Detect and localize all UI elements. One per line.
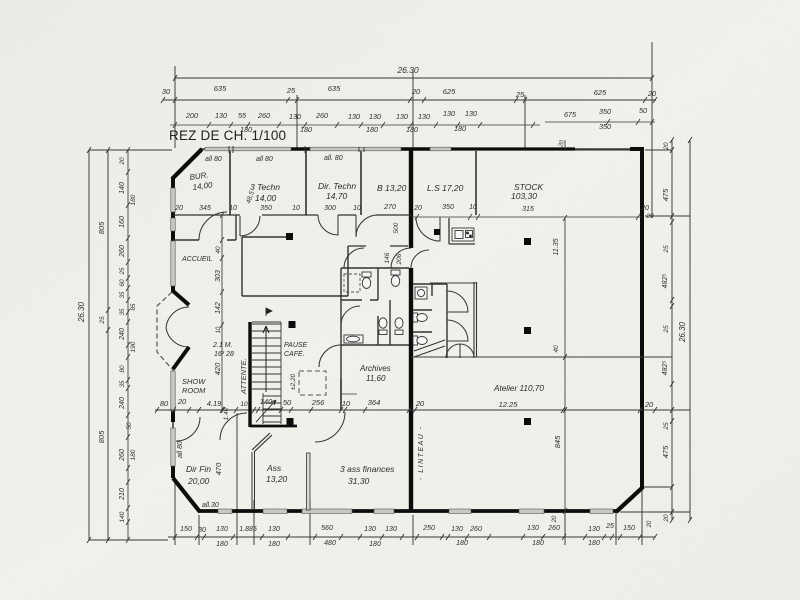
svg-text:L.S 17,20: L.S 17,20 xyxy=(427,183,464,193)
svg-text:14,00: 14,00 xyxy=(255,193,277,203)
svg-text:260: 260 xyxy=(257,111,270,120)
svg-text:ACCUEIL: ACCUEIL xyxy=(181,256,212,263)
svg-text:20: 20 xyxy=(647,520,653,528)
svg-text:130: 130 xyxy=(418,112,430,121)
svg-text:303: 303 xyxy=(215,270,222,282)
svg-text:80: 80 xyxy=(160,399,169,408)
svg-text:20: 20 xyxy=(177,397,187,406)
svg-text:625: 625 xyxy=(443,87,456,96)
svg-text:142: 142 xyxy=(215,302,222,314)
svg-text:25: 25 xyxy=(120,267,126,275)
svg-text:260: 260 xyxy=(119,245,126,258)
svg-text:20: 20 xyxy=(174,205,183,212)
svg-text:26.30: 26.30 xyxy=(77,301,86,323)
svg-text:180: 180 xyxy=(369,541,381,548)
svg-text:25: 25 xyxy=(286,86,296,95)
svg-text:B 13,20: B 13,20 xyxy=(377,183,407,193)
svg-text:180: 180 xyxy=(406,125,418,134)
svg-text:CAFE.: CAFE. xyxy=(284,351,305,358)
svg-text:20: 20 xyxy=(415,399,425,408)
svg-text:482⁵: 482⁵ xyxy=(662,274,669,289)
svg-text:1.885: 1.885 xyxy=(239,526,257,533)
svg-text:40: 40 xyxy=(553,345,560,353)
svg-text:40: 40 xyxy=(215,246,222,254)
svg-text:25: 25 xyxy=(99,316,106,325)
svg-text:REZ DE CH. 1/100: REZ DE CH. 1/100 xyxy=(169,128,286,143)
svg-text:130: 130 xyxy=(364,526,376,533)
svg-text:20: 20 xyxy=(644,400,654,409)
svg-text:35: 35 xyxy=(120,380,126,387)
svg-text:130: 130 xyxy=(215,111,227,120)
svg-text:130: 130 xyxy=(268,526,280,533)
svg-text:130: 130 xyxy=(289,112,301,121)
svg-text:130: 130 xyxy=(216,526,228,533)
svg-text:470: 470 xyxy=(214,462,223,475)
svg-text:635: 635 xyxy=(328,84,341,93)
svg-text:Atelier 110,70: Atelier 110,70 xyxy=(493,384,544,393)
svg-text:10: 10 xyxy=(469,204,477,211)
svg-text:140: 140 xyxy=(119,182,126,194)
svg-text:130: 130 xyxy=(348,112,360,121)
svg-text:560: 560 xyxy=(321,525,333,532)
svg-text:364: 364 xyxy=(368,398,381,407)
svg-text:180: 180 xyxy=(454,124,466,133)
svg-text:130: 130 xyxy=(443,109,455,118)
svg-text:240: 240 xyxy=(119,397,126,410)
svg-text:260: 260 xyxy=(547,525,560,532)
svg-text:55: 55 xyxy=(238,111,247,120)
svg-text:420: 420 xyxy=(213,362,222,375)
svg-text:20: 20 xyxy=(663,514,670,523)
svg-text:206: 206 xyxy=(396,253,403,265)
svg-text:10: 10 xyxy=(240,401,248,408)
svg-text:500: 500 xyxy=(393,222,400,233)
svg-text:250: 250 xyxy=(422,525,435,532)
svg-text:14,70: 14,70 xyxy=(326,191,348,201)
svg-text:482⁵: 482⁵ xyxy=(662,361,669,376)
svg-text:26.30: 26.30 xyxy=(678,321,687,343)
svg-text:10: 10 xyxy=(229,205,237,212)
svg-text:31,30: 31,30 xyxy=(348,476,370,486)
svg-text:130: 130 xyxy=(527,525,539,532)
svg-text:210: 210 xyxy=(119,488,126,501)
svg-text:50: 50 xyxy=(639,106,647,115)
svg-text:150: 150 xyxy=(623,525,635,532)
svg-text:140: 140 xyxy=(119,511,126,522)
svg-text:85: 85 xyxy=(131,303,137,310)
svg-text:260: 260 xyxy=(119,449,126,462)
svg-text:350: 350 xyxy=(599,107,611,116)
svg-text:all 80: all 80 xyxy=(205,156,222,163)
svg-text:20: 20 xyxy=(647,89,657,98)
svg-text:11,60: 11,60 xyxy=(366,374,386,383)
svg-text:805: 805 xyxy=(97,430,106,443)
svg-text:200: 200 xyxy=(185,111,198,120)
svg-text:PAUSE: PAUSE xyxy=(284,342,308,349)
svg-text:all. 80: all. 80 xyxy=(324,155,343,162)
svg-text:130: 130 xyxy=(588,526,600,533)
svg-text:50: 50 xyxy=(126,422,133,430)
svg-text:35: 35 xyxy=(120,291,126,298)
svg-text:10: 10 xyxy=(353,205,361,212)
svg-text:25: 25 xyxy=(663,325,670,334)
svg-text:180: 180 xyxy=(532,540,544,547)
svg-text:10: 10 xyxy=(216,326,222,333)
svg-text:130: 130 xyxy=(369,112,381,121)
svg-text:150: 150 xyxy=(180,526,192,533)
svg-text:350: 350 xyxy=(442,204,454,211)
svg-text:Dir. Techn: Dir. Techn xyxy=(318,181,356,191)
svg-text:1.40: 1.40 xyxy=(223,407,230,420)
svg-text:35: 35 xyxy=(120,308,126,315)
svg-text:350: 350 xyxy=(599,122,611,131)
svg-text:20: 20 xyxy=(552,515,558,523)
svg-text:130: 130 xyxy=(385,526,397,533)
svg-text:180: 180 xyxy=(366,125,378,134)
svg-text:146: 146 xyxy=(384,252,391,263)
svg-text:350: 350 xyxy=(260,205,272,212)
svg-text:160: 160 xyxy=(119,216,126,228)
svg-text:25: 25 xyxy=(515,90,525,99)
svg-text:20: 20 xyxy=(119,157,126,166)
svg-text:25: 25 xyxy=(605,523,614,530)
svg-text:480: 480 xyxy=(324,540,336,547)
svg-text:11.35: 11.35 xyxy=(553,238,560,255)
svg-text:±2,20: ±2,20 xyxy=(290,374,297,391)
svg-text:80: 80 xyxy=(119,365,126,373)
svg-text:10: 10 xyxy=(342,399,351,408)
svg-text:635: 635 xyxy=(214,84,227,93)
svg-text:103,30: 103,30 xyxy=(511,191,537,201)
svg-text:all 80: all 80 xyxy=(256,156,273,163)
svg-text:180: 180 xyxy=(216,541,228,548)
svg-text:ATTENTE.: ATTENTE. xyxy=(239,358,248,395)
svg-text:256: 256 xyxy=(311,398,325,407)
svg-text:315: 315 xyxy=(522,206,534,213)
svg-text:16³ 28: 16³ 28 xyxy=(214,351,234,358)
svg-text:all 80: all 80 xyxy=(177,441,184,458)
svg-text:180: 180 xyxy=(456,540,468,547)
svg-text:190: 190 xyxy=(130,341,137,352)
svg-text:180: 180 xyxy=(268,541,280,548)
svg-text:625: 625 xyxy=(594,88,607,97)
svg-text:Archives: Archives xyxy=(359,364,391,373)
svg-text:13,20: 13,20 xyxy=(266,474,288,484)
svg-text:all.30: all.30 xyxy=(202,502,219,509)
svg-text:20: 20 xyxy=(413,205,422,212)
svg-text:30: 30 xyxy=(162,87,171,96)
svg-text:845: 845 xyxy=(553,435,562,448)
svg-text:30: 30 xyxy=(198,527,206,534)
svg-text:10: 10 xyxy=(292,205,300,212)
svg-text:Ass: Ass xyxy=(266,463,282,473)
svg-text:180: 180 xyxy=(130,194,137,205)
svg-text:25: 25 xyxy=(663,422,670,431)
svg-text:4.19: 4.19 xyxy=(207,399,222,408)
svg-text:475: 475 xyxy=(661,445,670,458)
svg-text:20: 20 xyxy=(640,205,649,212)
svg-text:25: 25 xyxy=(663,245,670,254)
svg-text:Dir Fin: Dir Fin xyxy=(186,464,211,474)
svg-text:60: 60 xyxy=(119,279,126,287)
svg-text:180: 180 xyxy=(130,449,137,460)
svg-text:ROOM: ROOM xyxy=(182,386,206,395)
svg-text:20: 20 xyxy=(411,87,421,96)
svg-text:260: 260 xyxy=(315,111,328,120)
svg-text:12.25: 12.25 xyxy=(499,400,519,409)
svg-text:180: 180 xyxy=(588,540,600,547)
svg-text:805: 805 xyxy=(97,221,106,234)
svg-text:130: 130 xyxy=(465,109,477,118)
svg-text:2.1 M.: 2.1 M. xyxy=(212,342,233,349)
svg-text:675: 675 xyxy=(564,110,577,119)
svg-text:270: 270 xyxy=(383,204,396,211)
svg-text:130: 130 xyxy=(451,526,463,533)
svg-text:SHOW: SHOW xyxy=(182,377,206,386)
svg-text:180: 180 xyxy=(300,125,312,134)
svg-text:260: 260 xyxy=(469,526,482,533)
svg-text:50: 50 xyxy=(283,398,292,407)
svg-text:20: 20 xyxy=(645,213,654,220)
svg-text:130: 130 xyxy=(396,112,408,121)
svg-text:345: 345 xyxy=(199,205,211,212)
svg-text:475: 475 xyxy=(661,188,670,201)
svg-text:- LINTEAU -: - LINTEAU - xyxy=(418,425,425,480)
svg-text:3 Techn: 3 Techn xyxy=(250,182,280,192)
svg-text:20: 20 xyxy=(663,142,670,151)
svg-text:20,00: 20,00 xyxy=(187,476,210,486)
svg-text:240: 240 xyxy=(119,328,126,341)
svg-text:300: 300 xyxy=(324,205,336,212)
svg-text:3 ass finances: 3 ass finances xyxy=(340,464,395,474)
svg-text:26.30: 26.30 xyxy=(396,65,419,75)
